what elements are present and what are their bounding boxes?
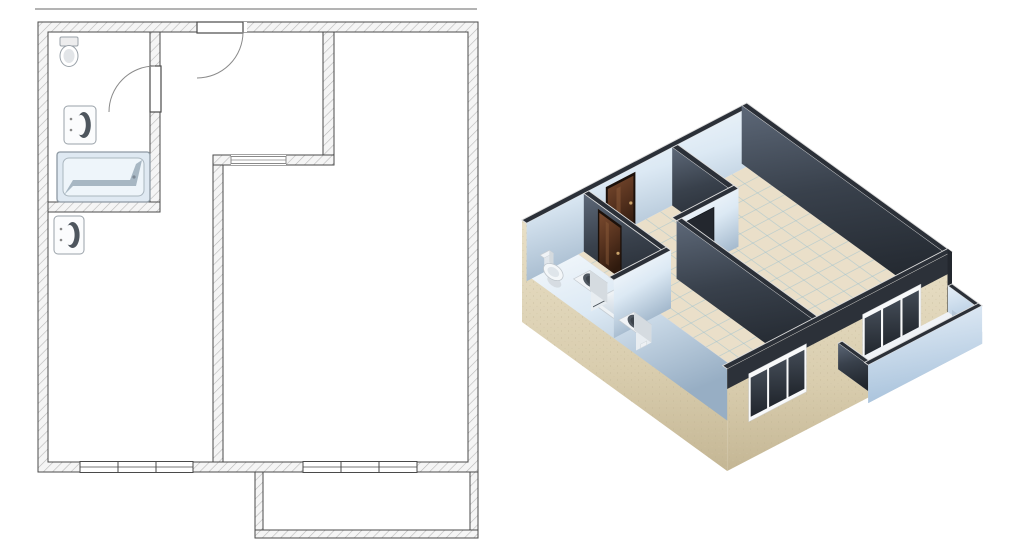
outer-walls-2d <box>38 22 478 472</box>
window-right-2d <box>303 462 417 473</box>
kitchen-living-wall-2d <box>213 165 223 462</box>
kitchen-sink-2d <box>54 216 84 254</box>
entry-door-leaf <box>197 22 243 33</box>
floorplan-screenshot <box>0 0 1024 539</box>
bathtub-2d <box>57 152 150 202</box>
bathroom-door-2d <box>109 66 161 112</box>
scene-canvas <box>0 0 1024 539</box>
bathroom-sink-2d <box>64 106 96 144</box>
window-left-2d <box>80 462 193 473</box>
toilet-2d <box>60 37 78 67</box>
entry-door-swing-arc <box>197 32 243 78</box>
floorplan-2d-view <box>35 9 478 538</box>
bathroom-door-leaf <box>150 66 161 112</box>
entry-door-2d <box>197 22 247 78</box>
hall-opening-2d <box>231 155 286 165</box>
bathroom-bottom-wall-2d <box>48 202 160 212</box>
floorplan-3d-view <box>522 103 982 471</box>
inner-walls-2d <box>48 32 334 462</box>
bathroom-right-wall-2d <box>150 32 160 212</box>
hall-right-wall-2d <box>323 32 334 155</box>
balcony-2d <box>255 472 478 538</box>
bathroom-door-swing-arc <box>109 66 155 112</box>
